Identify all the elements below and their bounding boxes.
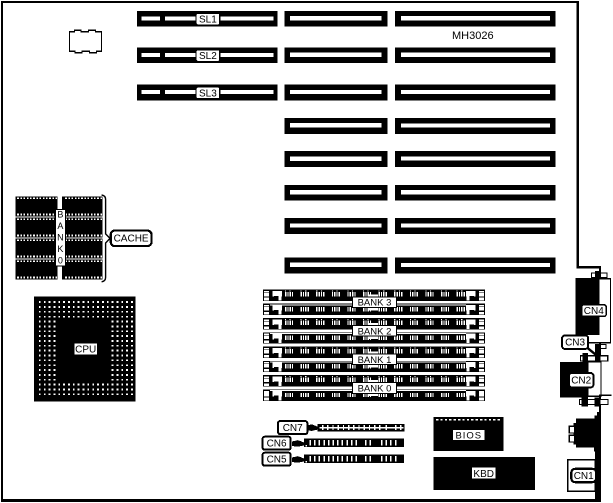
svg-text:CPU: CPU <box>75 344 96 355</box>
svg-text:KBD: KBD <box>473 469 494 480</box>
svg-text:CACHE: CACHE <box>114 234 149 245</box>
svg-text:BANK 1: BANK 1 <box>358 355 392 366</box>
svg-text:N: N <box>57 233 64 243</box>
svg-text:SL2: SL2 <box>199 51 217 62</box>
svg-text:K: K <box>57 244 63 254</box>
svg-text:SL3: SL3 <box>199 88 217 99</box>
svg-text:MH3026: MH3026 <box>452 30 494 42</box>
svg-text:BANK 3: BANK 3 <box>358 298 392 309</box>
svg-text:CN7: CN7 <box>283 423 303 434</box>
svg-text:CN2: CN2 <box>571 376 591 387</box>
svg-text:CN6: CN6 <box>267 439 287 450</box>
svg-text:BIOS: BIOS <box>455 430 482 441</box>
svg-text:CN3: CN3 <box>565 338 585 349</box>
svg-text:A: A <box>57 221 63 231</box>
svg-text:B: B <box>57 210 63 220</box>
svg-text:CN5: CN5 <box>267 455 287 466</box>
svg-text:SL1: SL1 <box>199 15 217 26</box>
svg-text:CN1: CN1 <box>574 471 594 482</box>
svg-text:BANK 0: BANK 0 <box>358 383 392 394</box>
svg-text:CN4: CN4 <box>584 306 604 317</box>
svg-text:0: 0 <box>58 256 63 266</box>
svg-text:BANK 2: BANK 2 <box>358 326 392 337</box>
